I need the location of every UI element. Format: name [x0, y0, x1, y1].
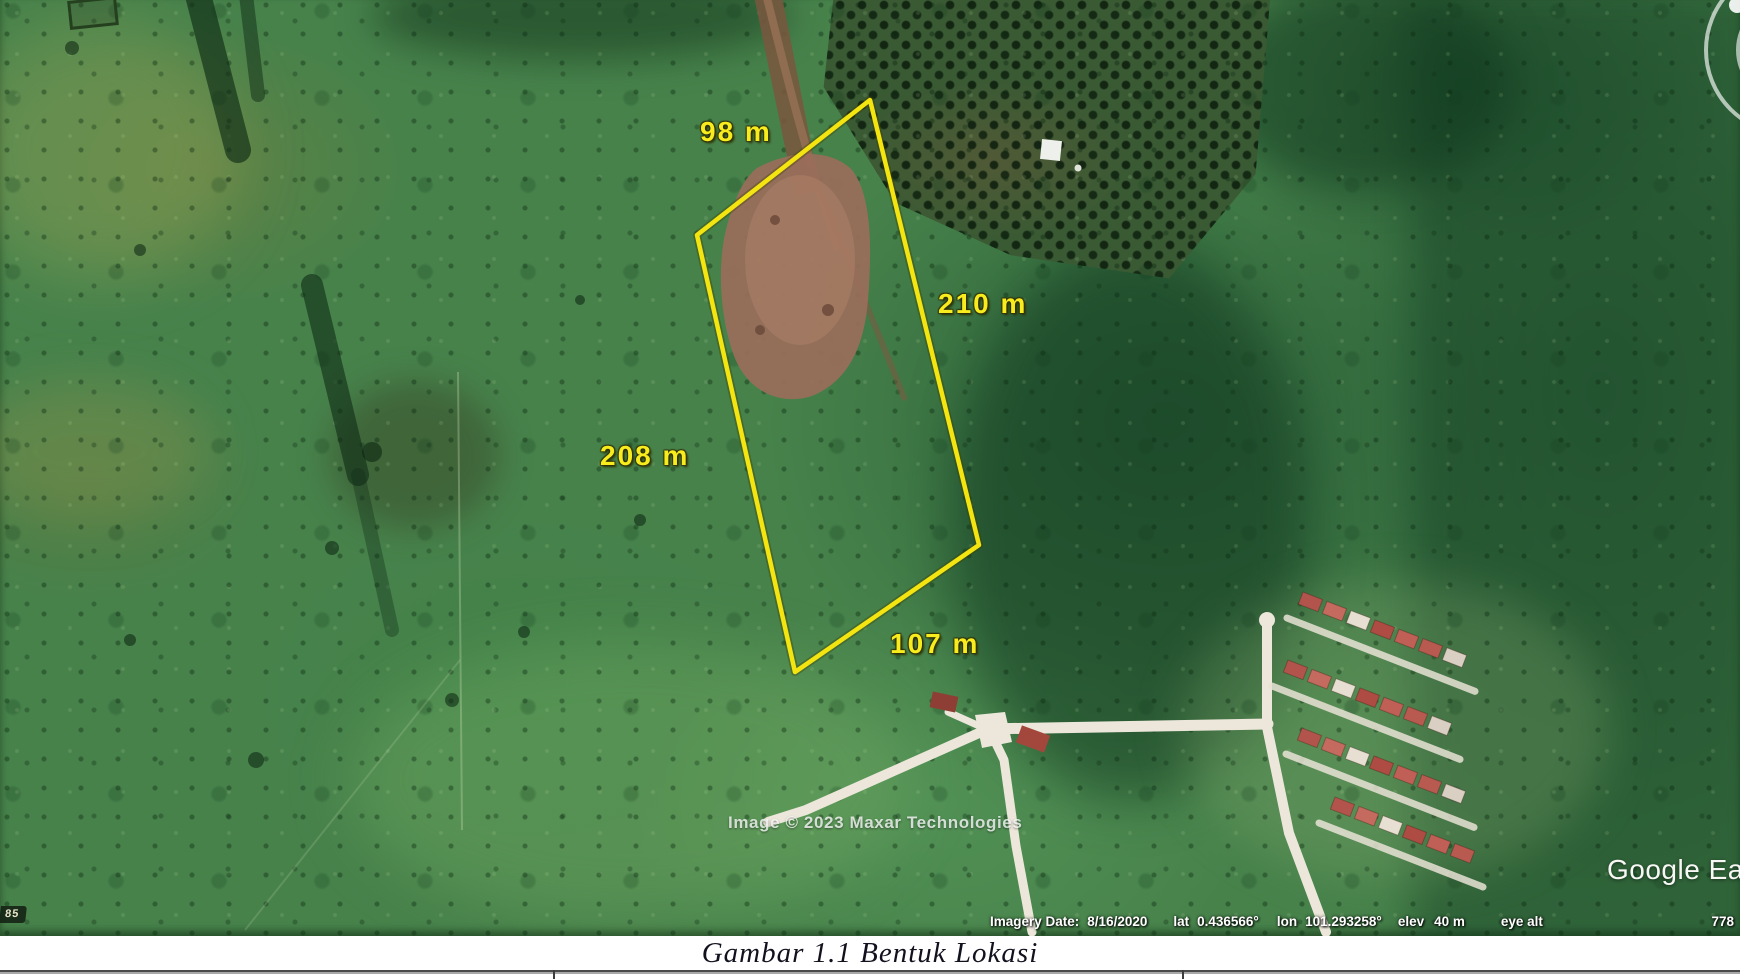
- housing-complex: [1272, 592, 1483, 887]
- imagery-attribution-watermark: Image © 2023 Maxar Technologies: [728, 813, 1022, 833]
- lon-value: 101.293258°: [1305, 914, 1382, 929]
- hut-outline: [69, 0, 117, 28]
- table-top-border: [0, 970, 1740, 974]
- table-column-divider: [553, 970, 555, 979]
- status-bar: Imagery Date: 8/16/2020 lat 0.436566° lo…: [990, 910, 1738, 932]
- eye-alt-label: eye alt: [1501, 914, 1543, 929]
- measurement-label-bottom: 107 m: [890, 628, 979, 660]
- compass-control[interactable]: [1706, 0, 1740, 134]
- document-footer: Gambar 1.1 Bentuk Lokasi: [0, 936, 1740, 979]
- eye-alt-value: 778: [1711, 914, 1734, 929]
- corner-badge: 85: [0, 906, 27, 923]
- measurement-label-right: 210 m: [938, 288, 1027, 320]
- cleared-soil-patch: [721, 154, 870, 399]
- map-graphics: [0, 0, 1740, 936]
- road-network: [768, 612, 1326, 932]
- document-page: 98 m 210 m 208 m 107 m Image © 2023 Maxa…: [0, 0, 1740, 979]
- imagery-date-value: 8/16/2020: [1087, 914, 1147, 929]
- measurement-label-top: 98 m: [700, 116, 772, 148]
- imagery-date-label: Imagery Date:: [990, 914, 1079, 929]
- white-building: [1040, 139, 1081, 171]
- measurement-label-left: 208 m: [600, 440, 689, 472]
- lon-label: lon: [1277, 914, 1297, 929]
- lat-value: 0.436566°: [1197, 914, 1259, 929]
- elev-label: elev: [1398, 914, 1424, 929]
- lat-label: lat: [1173, 914, 1189, 929]
- satellite-map-viewport[interactable]: 98 m 210 m 208 m 107 m Image © 2023 Maxa…: [0, 0, 1740, 936]
- google-earth-logo: Google Ea: [1607, 854, 1740, 886]
- figure-caption: Gambar 1.1 Bentuk Lokasi: [0, 937, 1740, 970]
- tree-lines: [65, 0, 646, 768]
- table-column-divider: [1182, 970, 1184, 979]
- elev-value: 40 m: [1434, 914, 1465, 929]
